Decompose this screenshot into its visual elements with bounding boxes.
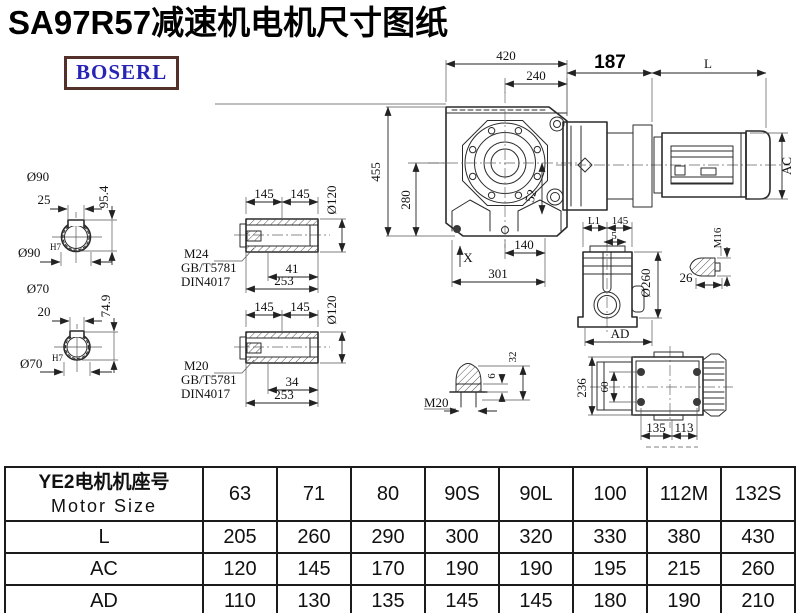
dim-flange-187: 187 — [594, 52, 626, 73]
bushing24-len-a: 145 — [254, 186, 274, 201]
bottom-view: 236 60 135 113 — [574, 346, 733, 447]
shaft70-dia-label: Ø70 — [27, 281, 49, 296]
dim-bottom-center: 140 — [514, 237, 534, 252]
axis-x-label: X — [463, 250, 473, 265]
shaft70-fit-dia: Ø70 — [20, 356, 42, 371]
L-90s: 300 — [425, 521, 499, 553]
bolt-m16-view: M16 26 — [680, 227, 732, 289]
side-dim-145: 145 — [612, 215, 629, 227]
shaft70-key-width: 20 — [38, 304, 51, 319]
bolt20-len: 32 — [507, 352, 519, 363]
dimension-drawing: 420 240 455 280 52 140 301 X — [0, 0, 800, 462]
AC-63: 120 — [203, 553, 277, 585]
AC-132s: 260 — [721, 553, 795, 585]
table-row-AD: AD 110 130 135 145 145 180 190 210 — [5, 585, 795, 613]
bushing20-std-gb: GB/T5781 — [181, 372, 237, 387]
side-dim-dia260: Ø260 — [638, 269, 653, 298]
frame-size-132s: 132S — [721, 467, 795, 521]
motor-size-label-en: Motor Size — [6, 495, 202, 517]
L-63: 205 — [203, 521, 277, 553]
dim-motor-AC: AC — [779, 157, 794, 175]
bolt20-thread: M20 — [424, 395, 449, 410]
bushing20-dia: Ø120 — [324, 296, 339, 325]
L-80: 290 — [351, 521, 425, 553]
bushing20-len-a: 145 — [254, 299, 274, 314]
bolt16-len: 26 — [680, 270, 694, 285]
dim-top-width: 420 — [496, 48, 516, 63]
shaft90-dia-label: Ø90 — [27, 169, 49, 184]
AD-112m: 190 — [647, 585, 721, 613]
row-label-AD: AD — [5, 585, 203, 613]
bottom-dim-135: 135 — [646, 420, 666, 435]
gearbox-side-view: L1 145 5 Ø260 AD — [578, 215, 662, 346]
table-row-L: L 205 260 290 300 320 330 380 430 — [5, 521, 795, 553]
front-view: 420 240 455 280 52 140 301 X — [368, 48, 582, 287]
frame-size-90s: 90S — [425, 467, 499, 521]
frame-size-63: 63 — [203, 467, 277, 521]
shaft70-fit-tol: H7 — [52, 353, 63, 363]
bushing20-total: 253 — [274, 387, 294, 402]
AC-80: 170 — [351, 553, 425, 585]
bolt-m20-view: M20 6 32 — [424, 352, 530, 412]
AD-71: 130 — [277, 585, 351, 613]
bushing20-len-b: 145 — [290, 299, 310, 314]
AD-132s: 210 — [721, 585, 795, 613]
AC-90l: 190 — [499, 553, 573, 585]
table-header-row: YE2电机机座号 Motor Size 63 71 80 90S 90L 100… — [5, 467, 795, 521]
frame-size-71: 71 — [277, 467, 351, 521]
L-112m: 380 — [647, 521, 721, 553]
AD-100: 180 — [573, 585, 647, 613]
bushing24-thread: M24 — [184, 246, 209, 261]
bushing20-std-din: DIN4017 — [181, 386, 231, 401]
motor-size-table: YE2电机机座号 Motor Size 63 71 80 90S 90L 100… — [4, 466, 796, 613]
row-label-L: L — [5, 521, 203, 553]
AC-71: 145 — [277, 553, 351, 585]
dim-center-height: 280 — [398, 190, 413, 210]
shaft70-key-height: 74.9 — [98, 295, 113, 318]
bushing20-thread: M20 — [184, 358, 209, 373]
dim-flange-width: 240 — [526, 68, 546, 83]
AC-100: 195 — [573, 553, 647, 585]
bushing24-std-gb: GB/T5781 — [181, 260, 237, 275]
motor-side-view: 187 L AC — [556, 52, 794, 210]
frame-size-100: 100 — [573, 467, 647, 521]
side-dim-l1: L1 — [588, 215, 600, 227]
side-dim-5: 5 — [611, 230, 617, 242]
dim-bottom-width: 301 — [488, 266, 508, 281]
bushing24-std-din: DIN4017 — [181, 274, 231, 289]
AD-63: 110 — [203, 585, 277, 613]
table-row-AC: AC 120 145 170 190 190 195 215 260 — [5, 553, 795, 585]
bushing24-total: 253 — [274, 273, 294, 288]
bottom-dim-236: 236 — [574, 378, 589, 398]
AD-90l: 145 — [499, 585, 573, 613]
motor-size-label-cn: YE2电机机座号 — [6, 471, 202, 495]
shaft-90-view: Ø90 25 95.4 Ø90 H7 — [18, 169, 117, 266]
frame-size-80: 80 — [351, 467, 425, 521]
AD-80: 135 — [351, 585, 425, 613]
bolt20-tip: 6 — [486, 373, 498, 379]
dim-motor-L: L — [704, 56, 712, 71]
L-132s: 430 — [721, 521, 795, 553]
shaft90-fit-dia: Ø90 — [18, 245, 40, 260]
row-label-AC: AC — [5, 553, 203, 585]
gearbox-outline — [446, 107, 567, 236]
side-dim-AD: AD — [611, 326, 630, 341]
bushing-m24-view: 145 145 Ø120 M24 GB/T5781 DIN4017 41 253 — [181, 186, 346, 293]
L-100: 330 — [573, 521, 647, 553]
shaft-70-view: Ø70 20 74.9 Ø70 H7 — [20, 281, 118, 376]
shaft90-fit-tol: H7 — [50, 242, 61, 252]
bushing24-dia: Ø120 — [324, 186, 339, 215]
dim-height: 455 — [368, 162, 383, 182]
bottom-dim-113: 113 — [674, 420, 693, 435]
shaft90-key-height: 95.4 — [96, 185, 111, 208]
bushing24-len-b: 145 — [290, 186, 310, 201]
L-90l: 320 — [499, 521, 573, 553]
bottom-dim-60: 60 — [599, 381, 611, 393]
bushing-m20-view: 145 145 Ø120 M20 GB/T5781 DIN4017 34 253 — [181, 296, 346, 407]
page: SA97R57减速机电机尺寸图纸 BOSERL — [0, 0, 800, 613]
L-71: 260 — [277, 521, 351, 553]
header-motor-size-cell: YE2电机机座号 Motor Size — [5, 467, 203, 521]
shaft90-key-width: 25 — [38, 192, 51, 207]
AD-90s: 145 — [425, 585, 499, 613]
frame-size-112m: 112M — [647, 467, 721, 521]
AC-90s: 190 — [425, 553, 499, 585]
frame-size-90l: 90L — [499, 467, 573, 521]
AC-112m: 215 — [647, 553, 721, 585]
bolt16-thread: M16 — [712, 227, 724, 248]
